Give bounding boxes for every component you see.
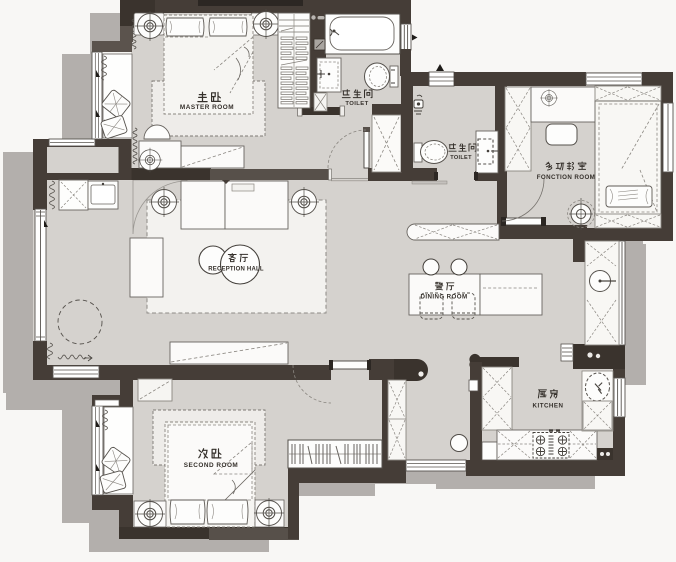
svg-text:TOILET: TOILET [450,155,472,161]
svg-text:MASTER ROOM: MASTER ROOM [180,104,234,111]
svg-text:FONCTION ROOM: FONCTION ROOM [537,174,595,181]
svg-text:DINING ROOM: DINING ROOM [420,294,467,301]
svg-text:TOILET: TOILET [345,101,368,107]
svg-text:KITCHEN: KITCHEN [533,403,564,410]
svg-text:SECOND ROOM: SECOND ROOM [184,462,239,469]
svg-text:RECEPTION HALL: RECEPTION HALL [208,267,264,273]
